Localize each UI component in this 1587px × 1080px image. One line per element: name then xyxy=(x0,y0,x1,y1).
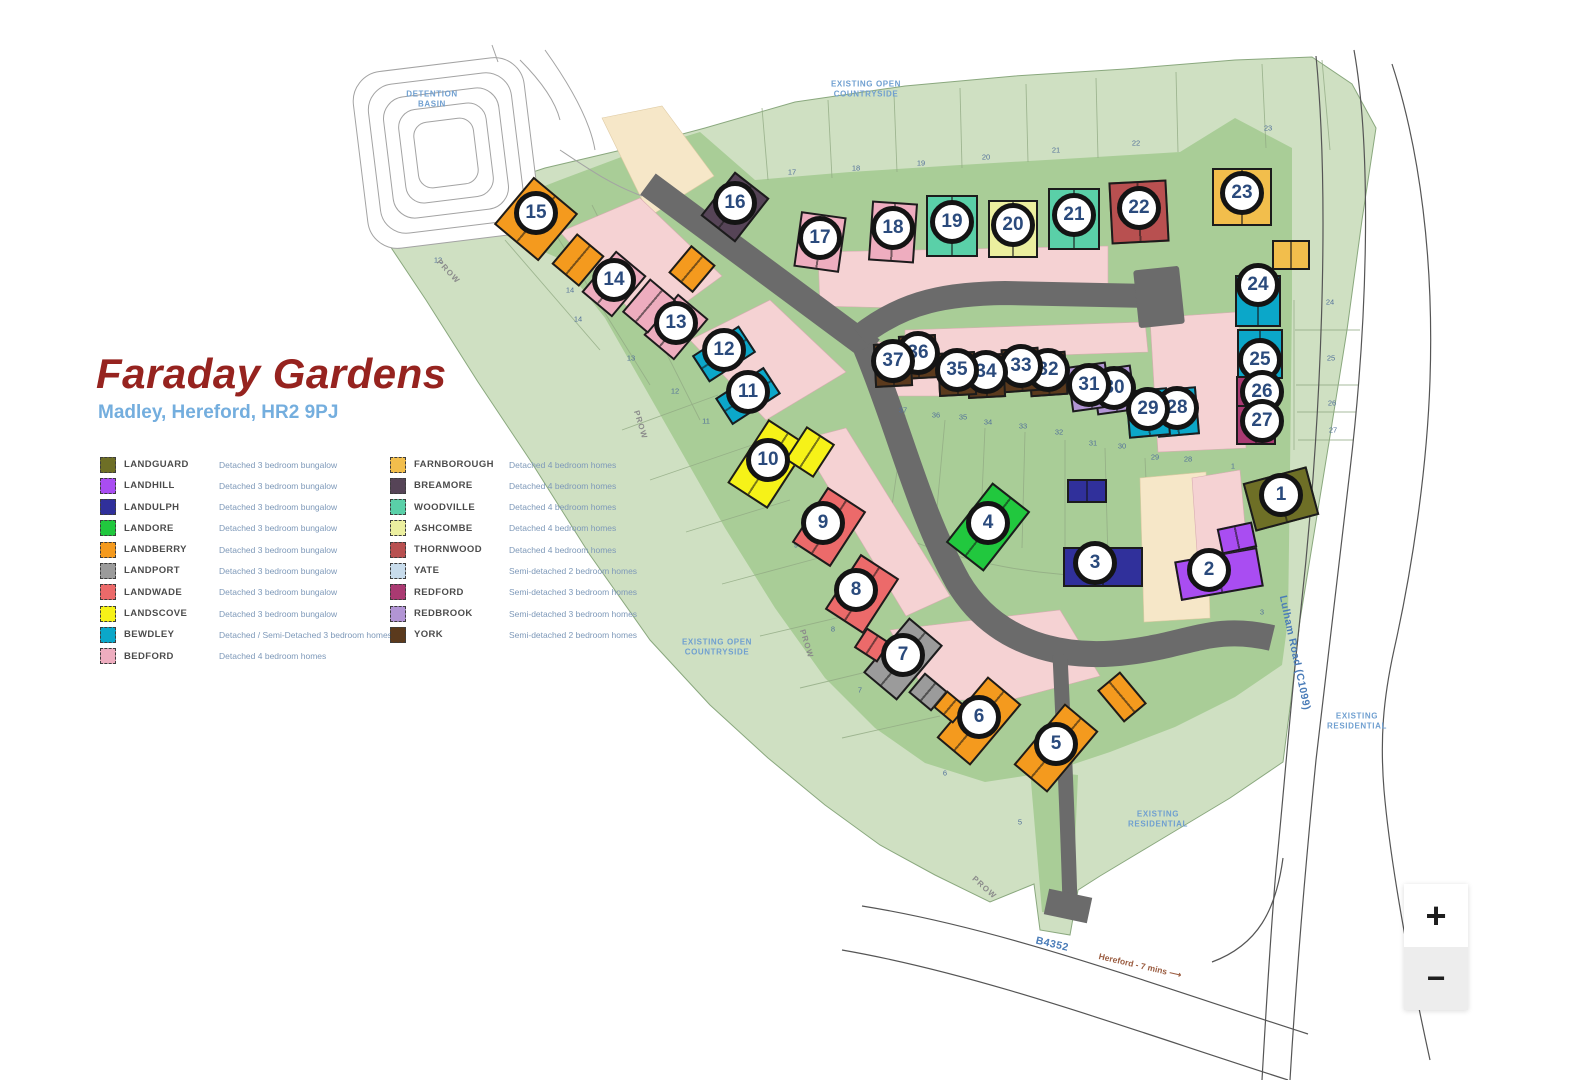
legend-item-landguard: LANDGUARDDetached 3 bedroom bungalow xyxy=(100,456,392,473)
legend-label: ASHCOMBE xyxy=(414,523,497,534)
plot-marker-15[interactable]: 15 xyxy=(514,191,558,235)
woodville-swatch xyxy=(390,499,406,515)
zoom-in-button[interactable]: + xyxy=(1404,884,1468,947)
plot-marker-35[interactable]: 35 xyxy=(935,348,979,392)
redford-swatch xyxy=(390,584,406,600)
legend-item-bewdley: BEWDLEYDetached / Semi-Detached 3 bedroo… xyxy=(100,626,392,643)
breamore-swatch xyxy=(390,478,406,494)
legend-label: YATE xyxy=(414,565,497,576)
thornwood-swatch xyxy=(390,542,406,558)
plot-marker-5[interactable]: 5 xyxy=(1034,722,1078,766)
plot-marker-1[interactable]: 1 xyxy=(1259,473,1303,517)
plot-marker-19[interactable]: 19 xyxy=(930,200,974,244)
legend-description: Detached 4 bedroom homes xyxy=(509,460,616,470)
plot-marker-20[interactable]: 20 xyxy=(991,203,1035,247)
plot-marker-17[interactable]: 17 xyxy=(798,216,842,260)
legend-item-ashcombe: ASHCOMBEDetached 4 bedroom homes xyxy=(390,520,637,537)
legend-item-redford: REDFORDSemi-detached 3 bedroom homes xyxy=(390,584,637,601)
detention-basin xyxy=(350,54,542,252)
legend-label: BREAMORE xyxy=(414,480,497,491)
legend-item-landhill: LANDHILLDetached 3 bedroom bungalow xyxy=(100,477,392,494)
legend-item-landulph: LANDULPHDetached 3 bedroom bungalow xyxy=(100,499,392,516)
legend-item-landore: LANDOREDetached 3 bedroom bungalow xyxy=(100,520,392,537)
legend-column-1: LANDGUARDDetached 3 bedroom bungalowLAND… xyxy=(100,456,392,669)
legend-description: Semi-detached 3 bedroom homes xyxy=(509,609,637,619)
legend-label: BEWDLEY xyxy=(124,629,207,640)
legend-description: Detached 3 bedroom bungalow xyxy=(219,481,337,491)
legend-description: Semi-detached 2 bedroom homes xyxy=(509,566,637,576)
legend-label: LANDSCOVE xyxy=(124,608,207,619)
plot-marker-3[interactable]: 3 xyxy=(1073,541,1117,585)
page-subtitle: Madley, Hereford, HR2 9PJ xyxy=(98,402,338,424)
legend-item-farnborough: FARNBOROUGHDetached 4 bedroom homes xyxy=(390,456,637,473)
york-swatch xyxy=(390,627,406,643)
legend-label: THORNWOOD xyxy=(414,544,497,555)
legend-label: LANDORE xyxy=(124,523,207,534)
plot-marker-22[interactable]: 22 xyxy=(1117,186,1161,230)
legend-description: Detached / Semi-Detached 3 bedroom homes xyxy=(219,630,392,640)
plot-marker-6[interactable]: 6 xyxy=(957,695,1001,739)
plot-marker-24[interactable]: 24 xyxy=(1236,263,1280,307)
legend-label: LANDHILL xyxy=(124,480,207,491)
plot-marker-9[interactable]: 9 xyxy=(801,501,845,545)
redbrook-swatch xyxy=(390,606,406,622)
legend-item-landwade: LANDWADEDetached 3 bedroom bungalow xyxy=(100,584,392,601)
yate-swatch xyxy=(390,563,406,579)
plot-marker-4[interactable]: 4 xyxy=(966,501,1010,545)
legend-item-breamore: BREAMOREDetached 4 bedroom homes xyxy=(390,477,637,494)
landulph-swatch xyxy=(100,499,116,515)
legend-item-bedford: BEDFORDDetached 4 bedroom homes xyxy=(100,648,392,665)
legend-description: Detached 3 bedroom bungalow xyxy=(219,460,337,470)
legend-description: Semi-detached 3 bedroom homes xyxy=(509,587,637,597)
legend-description: Detached 4 bedroom homes xyxy=(219,651,326,661)
bedford-swatch xyxy=(100,648,116,664)
plot-marker-10[interactable]: 10 xyxy=(746,438,790,482)
plot-marker-21[interactable]: 21 xyxy=(1052,193,1096,237)
plot-marker-31[interactable]: 31 xyxy=(1067,363,1111,407)
legend-label: REDBROOK xyxy=(414,608,497,619)
legend-description: Detached 4 bedroom homes xyxy=(509,502,616,512)
zoom-out-button[interactable]: − xyxy=(1404,947,1468,1010)
landberry-swatch xyxy=(100,542,116,558)
plot-marker-16[interactable]: 16 xyxy=(713,181,757,225)
plot-marker-23[interactable]: 23 xyxy=(1220,171,1264,215)
landscove-swatch xyxy=(100,606,116,622)
legend-item-landberry: LANDBERRYDetached 3 bedroom bungalow xyxy=(100,541,392,558)
legend-label: BEDFORD xyxy=(124,651,207,662)
legend-description: Semi-detached 2 bedroom homes xyxy=(509,630,637,640)
bewdley-swatch xyxy=(100,627,116,643)
legend-item-woodville: WOODVILLEDetached 4 bedroom homes xyxy=(390,499,637,516)
plot-marker-37[interactable]: 37 xyxy=(871,339,915,383)
legend-description: Detached 4 bedroom homes xyxy=(509,523,616,533)
landhill-swatch xyxy=(100,478,116,494)
landore-swatch xyxy=(100,520,116,536)
legend-description: Detached 3 bedroom bungalow xyxy=(219,587,337,597)
legend-label: LANDGUARD xyxy=(124,459,207,470)
legend-label: REDFORD xyxy=(414,587,497,598)
page-title: Faraday Gardens xyxy=(96,350,447,398)
plot-marker-27[interactable]: 27 xyxy=(1240,399,1284,443)
legend-description: Detached 4 bedroom homes xyxy=(509,481,616,491)
landwade-swatch xyxy=(100,584,116,600)
ashcombe-swatch xyxy=(390,520,406,536)
plot-marker-2[interactable]: 2 xyxy=(1187,548,1231,592)
legend-label: LANDPORT xyxy=(124,565,207,576)
plot-marker-11[interactable]: 11 xyxy=(726,370,770,414)
road-hammerhead xyxy=(1133,266,1185,328)
landport-swatch xyxy=(100,563,116,579)
plot-marker-8[interactable]: 8 xyxy=(834,568,878,612)
legend-item-landport: LANDPORTDetached 3 bedroom bungalow xyxy=(100,562,392,579)
legend-description: Detached 3 bedroom bungalow xyxy=(219,502,337,512)
site-plan-page: Faraday Gardens Madley, Hereford, HR2 9P… xyxy=(0,0,1587,1080)
legend-description: Detached 3 bedroom bungalow xyxy=(219,609,337,619)
legend-item-redbrook: REDBROOKSemi-detached 3 bedroom homes xyxy=(390,605,637,622)
legend-label: LANDWADE xyxy=(124,587,207,598)
legend-label: YORK xyxy=(414,629,497,640)
legend-item-landscove: LANDSCOVEDetached 3 bedroom bungalow xyxy=(100,605,392,622)
legend-column-2: FARNBOROUGHDetached 4 bedroom homesBREAM… xyxy=(390,456,637,648)
plot-marker-14[interactable]: 14 xyxy=(592,258,636,302)
legend-description: Detached 3 bedroom bungalow xyxy=(219,523,337,533)
legend-item-yate: YATESemi-detached 2 bedroom homes xyxy=(390,562,637,579)
legend-description: Detached 4 bedroom homes xyxy=(509,545,616,555)
plot-marker-12[interactable]: 12 xyxy=(702,328,746,372)
legend-item-york: YORKSemi-detached 2 bedroom homes xyxy=(390,626,637,643)
legend-description: Detached 3 bedroom bungalow xyxy=(219,545,337,555)
zoom-controls: + − xyxy=(1404,884,1468,1010)
plot-marker-7[interactable]: 7 xyxy=(881,633,925,677)
legend-item-thornwood: THORNWOODDetached 4 bedroom homes xyxy=(390,541,637,558)
plot-marker-18[interactable]: 18 xyxy=(871,206,915,250)
legend-label: WOODVILLE xyxy=(414,502,497,513)
legend-label: LANDBERRY xyxy=(124,544,207,555)
legend-description: Detached 3 bedroom bungalow xyxy=(219,566,337,576)
legend-label: LANDULPH xyxy=(124,502,207,513)
landguard-swatch xyxy=(100,457,116,473)
farnborough-swatch xyxy=(390,457,406,473)
legend-label: FARNBOROUGH xyxy=(414,459,497,470)
plot-marker-13[interactable]: 13 xyxy=(654,301,698,345)
